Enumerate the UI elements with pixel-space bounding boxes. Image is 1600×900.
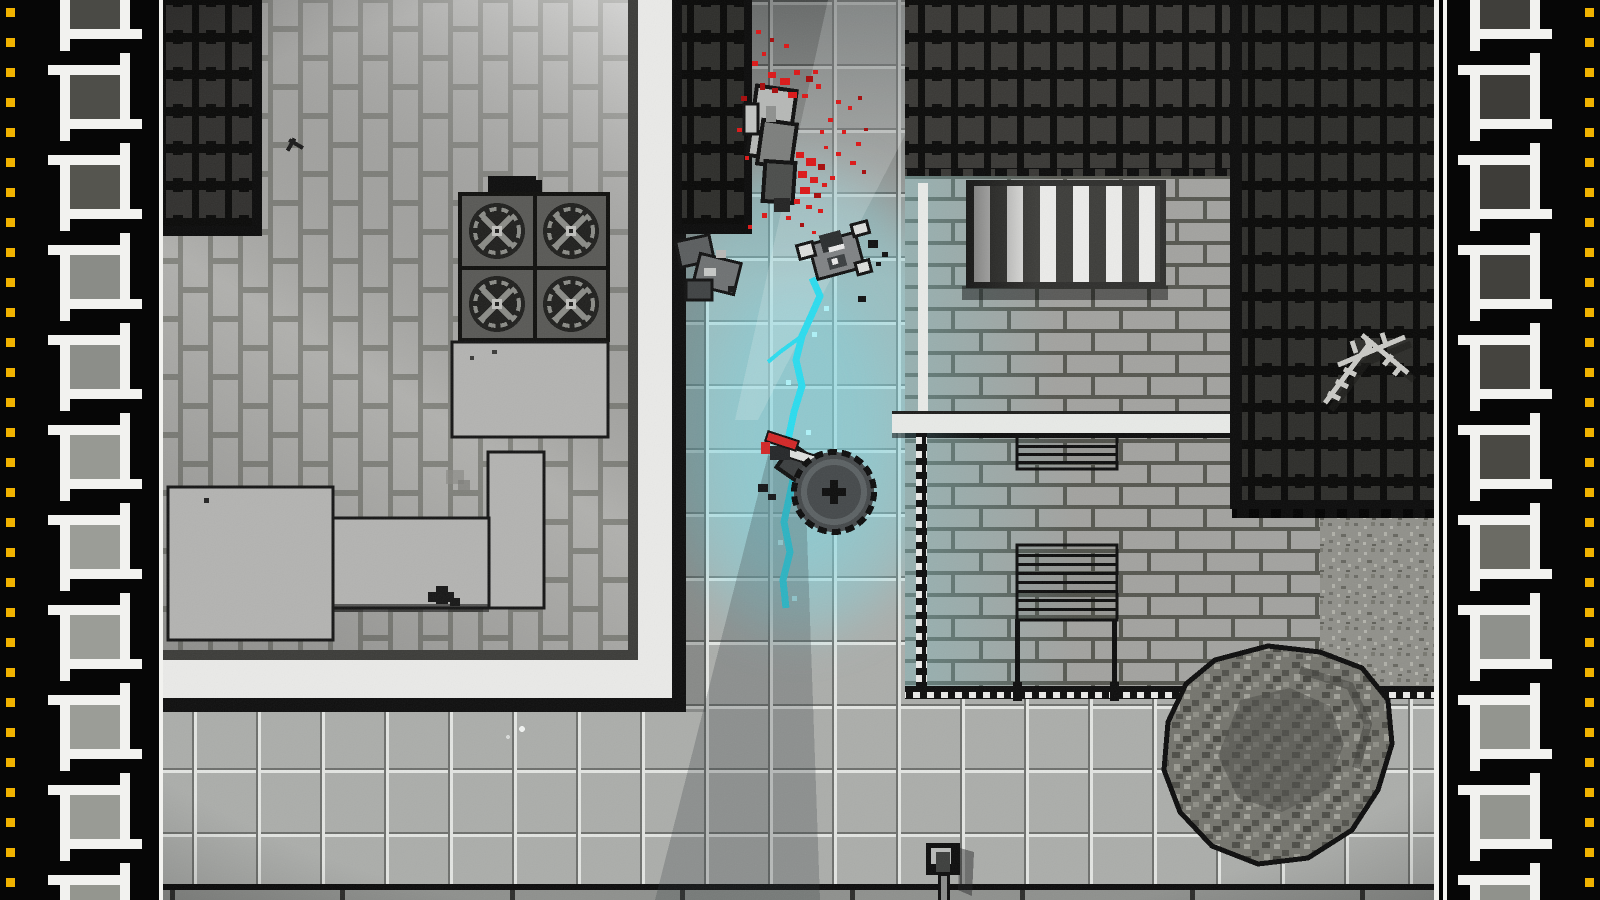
sprocket-hole-window <box>1480 615 1530 659</box>
sprocket-frame-bar <box>60 525 70 591</box>
film-dot <box>1585 38 1594 47</box>
sprocket-frame-bar <box>1480 299 1552 309</box>
film-dot <box>1585 188 1594 197</box>
sprocket-frame-bar <box>1458 875 1530 885</box>
film-dot <box>1585 608 1594 617</box>
sprocket-frame-bar <box>1470 0 1480 51</box>
sprocket-frame-bar <box>1458 695 1530 705</box>
film-dot <box>1585 398 1594 407</box>
sprocket-frame-bar <box>1530 413 1540 479</box>
sprocket-frame-bar <box>1458 605 1530 615</box>
film-dot <box>6 818 15 827</box>
sprocket-hole-window <box>70 255 120 299</box>
sprocket-frame-bar <box>1470 75 1480 141</box>
film-dot <box>6 878 15 887</box>
sprocket-frame-bar <box>1480 479 1552 489</box>
sprocket-frame-bar <box>48 875 120 885</box>
film-dot <box>6 68 15 77</box>
film-sprocket-hole <box>1470 0 1540 39</box>
film-strip-right <box>1434 0 1600 900</box>
film-dot <box>6 758 15 767</box>
film-sprocket-hole <box>60 0 130 39</box>
film-dot <box>1585 548 1594 557</box>
sprocket-frame-bar <box>1470 345 1480 411</box>
sprocket-frame-bar <box>70 119 142 129</box>
sprocket-hole-window <box>70 615 120 659</box>
sprocket-frame-bar <box>48 785 120 795</box>
sprocket-frame-bar <box>120 323 130 389</box>
sprocket-frame-bar <box>1480 659 1552 669</box>
sprocket-frame-bar <box>1458 245 1530 255</box>
film-sprocket-hole <box>1470 335 1540 399</box>
film-sprocket-hole <box>1470 605 1540 669</box>
sprocket-frame-bar <box>60 705 70 771</box>
sprocket-frame-bar <box>70 209 142 219</box>
film-dot <box>6 668 15 677</box>
sprocket-frame-bar <box>1530 143 1540 209</box>
film-sprocket-hole <box>1470 155 1540 219</box>
film-sprocket-hole <box>1470 425 1540 489</box>
sprocket-frame-bar <box>60 165 70 231</box>
film-sprocket-hole <box>60 515 130 579</box>
sprocket-hole-window <box>1480 75 1530 119</box>
sprocket-frame-bar <box>1530 503 1540 569</box>
sprocket-frame-bar <box>60 615 70 681</box>
film-sprocket-hole <box>1470 875 1540 900</box>
sprocket-frame-bar <box>120 53 130 119</box>
film-sprocket-hole <box>60 695 130 759</box>
sprocket-hole-window <box>1480 345 1530 389</box>
sprocket-frame-bar <box>1470 525 1480 591</box>
film-dot <box>1585 278 1594 287</box>
sprocket-hole-window <box>70 705 120 749</box>
film-dot <box>1585 8 1594 17</box>
sprocket-frame-bar <box>70 299 142 309</box>
sprocket-frame-bar <box>48 245 120 255</box>
film-dot <box>6 188 15 197</box>
film-dot <box>6 518 15 527</box>
film-sprocket-hole <box>1470 695 1540 759</box>
sprocket-frame-bar <box>70 839 142 849</box>
sprocket-frame-bar <box>1458 155 1530 165</box>
film-dot <box>1585 158 1594 167</box>
sprocket-hole-window <box>1480 795 1530 839</box>
film-dot <box>1585 728 1594 737</box>
film-edge-line <box>1443 0 1447 900</box>
film-dot <box>6 38 15 47</box>
film-dot <box>6 278 15 287</box>
sprocket-frame-bar <box>1530 233 1540 299</box>
film-dot <box>6 578 15 587</box>
sprocket-frame-bar <box>48 425 120 435</box>
sprocket-hole-window <box>1480 165 1530 209</box>
sprocket-frame-bar <box>70 29 142 39</box>
sprocket-frame-bar <box>1458 335 1530 345</box>
film-sprocket-hole <box>1470 245 1540 309</box>
film-dot <box>1585 218 1594 227</box>
film-sprocket-hole <box>60 875 130 900</box>
sprocket-hole-window <box>70 345 120 389</box>
film-dot <box>1585 758 1594 767</box>
film-dot <box>6 848 15 857</box>
film-dot <box>6 218 15 227</box>
sprocket-hole-window <box>1480 435 1530 479</box>
film-sprocket-hole <box>60 155 130 219</box>
film-dot <box>6 788 15 797</box>
film-dot <box>1585 638 1594 647</box>
sprocket-hole-window <box>1480 255 1530 299</box>
film-dot <box>1585 698 1594 707</box>
sprocket-frame-bar <box>48 335 120 345</box>
film-dot <box>6 308 15 317</box>
film-sprocket-hole <box>1470 515 1540 579</box>
sprocket-frame-bar <box>1480 119 1552 129</box>
sprocket-frame-bar <box>120 683 130 749</box>
film-dot <box>6 8 15 17</box>
sprocket-hole-window <box>1480 705 1530 749</box>
game-scene <box>0 0 1600 900</box>
sprocket-frame-bar <box>1470 615 1480 681</box>
sprocket-hole-window <box>70 795 120 839</box>
film-sprocket-hole <box>60 245 130 309</box>
sprocket-frame-bar <box>1458 425 1530 435</box>
film-dot <box>6 428 15 437</box>
film-dot <box>1585 668 1594 677</box>
film-dot <box>6 488 15 497</box>
film-dot <box>1585 518 1594 527</box>
sprocket-frame-bar <box>70 659 142 669</box>
sprocket-frame-bar <box>1470 255 1480 321</box>
film-dot <box>1585 128 1594 137</box>
sprocket-frame-bar <box>60 0 70 51</box>
film-dot <box>1585 98 1594 107</box>
sprocket-frame-bar <box>48 605 120 615</box>
sprocket-frame-bar <box>120 143 130 209</box>
sprocket-frame-bar <box>60 885 70 900</box>
sprocket-hole-window <box>70 165 120 209</box>
film-dot <box>6 248 15 257</box>
sprocket-frame-bar <box>1480 29 1552 39</box>
sprocket-frame-bar <box>1470 435 1480 501</box>
film-dot <box>1585 368 1594 377</box>
sprocket-frame-bar <box>70 569 142 579</box>
sprocket-frame-bar <box>120 233 130 299</box>
film-dot <box>1585 578 1594 587</box>
sprocket-frame-bar <box>120 773 130 839</box>
sprocket-frame-bar <box>1530 863 1540 900</box>
sprocket-frame-bar <box>120 863 130 900</box>
film-sprocket-hole <box>60 65 130 129</box>
sprocket-hole-window <box>1480 885 1530 900</box>
sprocket-frame-bar <box>1530 323 1540 389</box>
film-dot <box>6 608 15 617</box>
film-dot <box>6 458 15 467</box>
film-strip-left <box>0 0 163 900</box>
sprocket-frame-bar <box>1480 839 1552 849</box>
sprocket-frame-bar <box>48 65 120 75</box>
sprocket-frame-bar <box>120 593 130 659</box>
sprocket-frame-bar <box>48 515 120 525</box>
sprocket-hole-window <box>70 75 120 119</box>
film-dot <box>6 128 15 137</box>
sprocket-frame-bar <box>70 749 142 759</box>
sprocket-frame-bar <box>60 75 70 141</box>
sprocket-frame-bar <box>1530 683 1540 749</box>
sprocket-frame-bar <box>120 503 130 569</box>
sprocket-frame-bar <box>1530 773 1540 839</box>
film-dot <box>6 638 15 647</box>
sprocket-frame-bar <box>120 0 130 29</box>
film-dot <box>6 398 15 407</box>
sprocket-frame-bar <box>1470 165 1480 231</box>
film-dot <box>1585 818 1594 827</box>
film-dot <box>1585 788 1594 797</box>
sprocket-frame-bar <box>1530 0 1540 29</box>
sprocket-hole-window <box>70 0 120 29</box>
film-dot <box>1585 848 1594 857</box>
film-dot <box>1585 308 1594 317</box>
film-dot <box>6 158 15 167</box>
sprocket-frame-bar <box>1480 749 1552 759</box>
sprocket-frame-bar <box>1458 65 1530 75</box>
film-dot <box>6 338 15 347</box>
sprocket-frame-bar <box>1470 795 1480 861</box>
film-dot <box>6 98 15 107</box>
film-dot <box>6 548 15 557</box>
sprocket-frame-bar <box>1530 53 1540 119</box>
sprocket-hole-window <box>1480 0 1530 29</box>
film-dot <box>6 728 15 737</box>
sprocket-frame-bar <box>60 795 70 861</box>
film-sprocket-hole <box>60 425 130 489</box>
sprocket-frame-bar <box>1458 785 1530 795</box>
game-viewport[interactable]: const data = JSON.parse(document.getElem… <box>0 0 1600 900</box>
film-sprocket-hole <box>1470 785 1540 849</box>
sprocket-hole-window <box>70 885 120 900</box>
vignette <box>0 0 1600 900</box>
sprocket-frame-bar <box>1470 705 1480 771</box>
film-sprocket-hole <box>60 785 130 849</box>
sprocket-hole-window <box>70 435 120 479</box>
film-dot <box>1585 458 1594 467</box>
sprocket-frame-bar <box>48 155 120 165</box>
film-dot <box>1585 68 1594 77</box>
film-dot <box>1585 428 1594 437</box>
sprocket-frame-bar <box>1470 885 1480 900</box>
sprocket-hole-window <box>70 525 120 569</box>
sprocket-frame-bar <box>1480 569 1552 579</box>
film-sprocket-hole <box>60 605 130 669</box>
sprocket-frame-bar <box>1480 389 1552 399</box>
sprocket-frame-bar <box>60 435 70 501</box>
sprocket-hole-window <box>1480 525 1530 569</box>
film-sprocket-hole <box>60 335 130 399</box>
sprocket-frame-bar <box>60 255 70 321</box>
film-sprocket-hole <box>1470 65 1540 129</box>
sprocket-frame-bar <box>70 479 142 489</box>
film-dot <box>6 698 15 707</box>
film-dot <box>1585 878 1594 887</box>
film-dot <box>1585 338 1594 347</box>
film-dot <box>1585 248 1594 257</box>
sprocket-frame-bar <box>120 413 130 479</box>
sprocket-frame-bar <box>70 389 142 399</box>
sprocket-frame-bar <box>1530 593 1540 659</box>
sprocket-frame-bar <box>1458 515 1530 525</box>
sprocket-frame-bar <box>48 695 120 705</box>
film-dot <box>1585 488 1594 497</box>
sprocket-frame-bar <box>60 345 70 411</box>
film-edge-line <box>159 0 163 900</box>
film-dot <box>6 368 15 377</box>
sprocket-frame-bar <box>1480 209 1552 219</box>
